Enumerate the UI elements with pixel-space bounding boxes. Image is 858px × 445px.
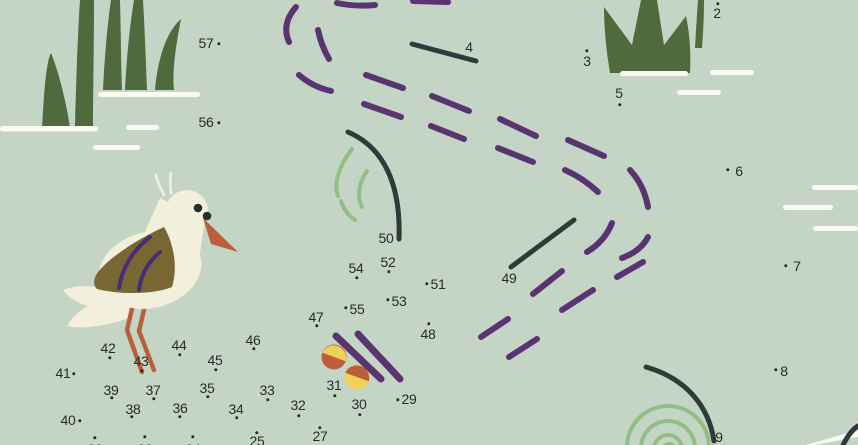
puzzle-dot[interactable] <box>152 397 155 400</box>
dot-number-label: 36 <box>173 401 188 415</box>
dot-number-label: 35 <box>200 381 215 395</box>
dot-number-label: 57 <box>199 36 214 50</box>
puzzle-dot[interactable] <box>386 298 389 301</box>
dot-number-label: 41 <box>56 366 71 380</box>
dot-number-label: 31 <box>327 378 342 392</box>
puzzle-dot[interactable] <box>206 395 209 398</box>
puzzle-dot[interactable] <box>252 347 255 350</box>
dot-number-label: 6 <box>735 164 743 178</box>
puzzle-dot[interactable] <box>214 368 217 371</box>
dot-number-label: 7 <box>793 259 801 273</box>
puzzle-dot[interactable] <box>217 121 220 124</box>
puzzle-dot[interactable] <box>387 270 390 273</box>
puzzle-dot[interactable] <box>355 276 358 279</box>
puzzle-dot[interactable] <box>78 419 81 422</box>
puzzle-dot[interactable] <box>235 416 238 419</box>
dot-number-label: 50 <box>379 231 394 245</box>
dot-number-label: 29 <box>402 392 417 406</box>
dot-number-label: 39 <box>104 383 119 397</box>
puzzle-dot[interactable] <box>315 324 318 327</box>
puzzle-dot[interactable] <box>425 282 428 285</box>
dot-number-label: 54 <box>349 261 364 275</box>
puzzle-dot[interactable] <box>191 435 194 438</box>
puzzle-dot[interactable] <box>108 356 111 359</box>
dot-number-label: 2 <box>713 6 721 20</box>
dot-number-label: 9 <box>715 430 723 444</box>
puzzle-dot[interactable] <box>178 353 181 356</box>
puzzle-dot[interactable] <box>130 415 133 418</box>
puzzle-dot[interactable] <box>110 396 113 399</box>
puzzle-dot[interactable] <box>266 398 269 401</box>
puzzle-canvas: 2345678922232425272930313233343536373839… <box>0 0 858 445</box>
dot-number-label: 8 <box>780 364 788 378</box>
dot-number-label: 3 <box>583 54 591 68</box>
dot-number-label: 55 <box>350 302 365 316</box>
dot-number-label: 43 <box>134 354 149 368</box>
dot-number-label: 25 <box>250 434 265 445</box>
puzzle-dot[interactable] <box>784 264 787 267</box>
puzzle-dot[interactable] <box>774 368 777 371</box>
dot-to-dot-points: 2345678922232425272930313233343536373839… <box>0 0 858 445</box>
dot-number-label: 32 <box>291 398 306 412</box>
puzzle-dot[interactable] <box>72 372 75 375</box>
dot-number-label: 52 <box>381 255 396 269</box>
dot-number-label: 38 <box>126 402 141 416</box>
dot-number-label: 56 <box>199 115 214 129</box>
dot-number-label: 30 <box>352 397 367 411</box>
puzzle-dot[interactable] <box>618 103 621 106</box>
puzzle-dot[interactable] <box>344 306 347 309</box>
dot-number-label: 34 <box>229 402 244 416</box>
dot-number-label: 27 <box>313 429 328 443</box>
puzzle-dot[interactable] <box>358 413 361 416</box>
puzzle-dot[interactable] <box>333 394 336 397</box>
puzzle-dot[interactable] <box>143 435 146 438</box>
dot-number-label: 48 <box>421 327 436 341</box>
dot-number-label: 4 <box>465 40 473 54</box>
dot-number-label: 40 <box>61 413 76 427</box>
dot-number-label: 51 <box>431 277 446 291</box>
puzzle-dot[interactable] <box>93 436 96 439</box>
dot-number-label: 5 <box>615 86 623 100</box>
puzzle-dot[interactable] <box>217 42 220 45</box>
dot-number-label: 45 <box>208 353 223 367</box>
dot-number-label: 44 <box>172 338 187 352</box>
puzzle-dot[interactable] <box>396 398 399 401</box>
puzzle-dot[interactable] <box>726 168 729 171</box>
dot-number-label: 47 <box>309 310 324 324</box>
dot-number-label: 42 <box>101 341 116 355</box>
puzzle-dot[interactable] <box>178 415 181 418</box>
dot-number-label: 33 <box>260 383 275 397</box>
dot-number-label: 46 <box>246 333 261 347</box>
dot-number-label: 53 <box>392 294 407 308</box>
puzzle-dot[interactable] <box>297 414 300 417</box>
dot-number-label: 37 <box>146 383 161 397</box>
puzzle-dot[interactable] <box>140 369 143 372</box>
dot-number-label: 49 <box>502 271 517 285</box>
